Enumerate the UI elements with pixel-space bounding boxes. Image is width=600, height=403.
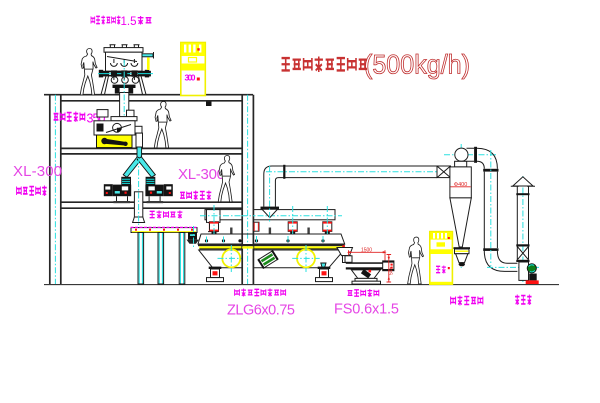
svg-text:FS0.6x1.5: FS0.6x1.5 [334, 302, 399, 318]
svg-text:1500: 1500 [361, 248, 372, 254]
svg-text:XL-300: XL-300 [13, 163, 62, 180]
svg-text:300: 300 [185, 73, 196, 83]
svg-text:XL-300: XL-300 [178, 166, 225, 183]
svg-text:(500kg/h): (500kg/h) [364, 50, 470, 80]
svg-text:ZLG6x0.75: ZLG6x0.75 [227, 303, 295, 319]
svg-text:545: 545 [389, 266, 395, 275]
svg-text:1.5: 1.5 [121, 16, 137, 28]
